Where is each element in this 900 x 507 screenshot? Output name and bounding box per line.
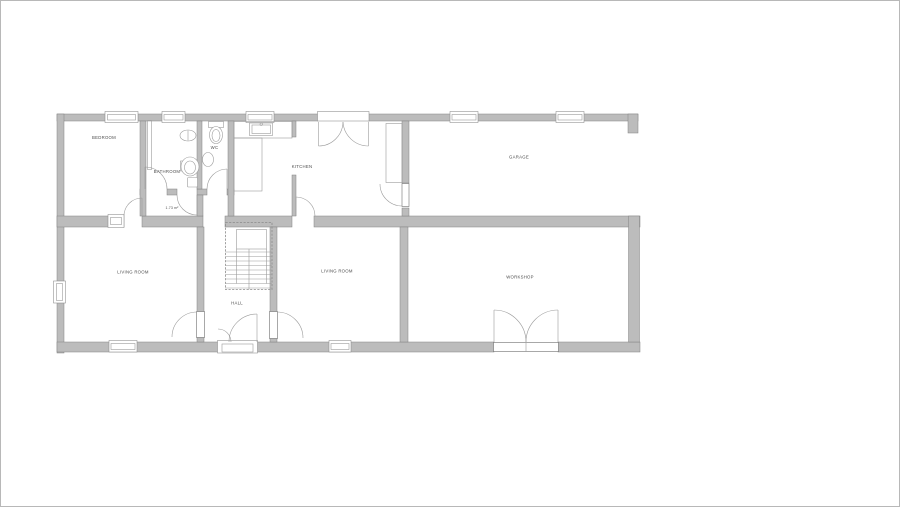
window [246,112,274,123]
wall-segment [270,227,277,312]
walls [57,114,640,353]
wall-segment [629,216,640,342]
wall-segment [257,342,494,352]
wall-segment [197,227,204,312]
door-leaf [402,184,409,207]
wall-segment [57,114,64,353]
shower-tray-icon [188,178,198,188]
door-leaf [270,312,278,339]
room-label-bedroom: BEDROOM [92,135,116,140]
window [556,112,584,123]
wall-segment [368,114,638,121]
fixtures [148,121,403,192]
door-arc [229,314,257,342]
room-label-closet-area: 1.73 m² [166,206,180,210]
room-label-hall: HALL [231,301,243,306]
wall-segment [292,121,296,137]
door-arc [296,197,315,216]
door-arc [494,310,526,342]
washbasin-icon [181,157,199,176]
wall-segment [225,216,292,227]
wall-segment [402,121,409,183]
cabinet-icon [386,124,402,183]
kitchen-counter [234,138,262,191]
door-arc [177,195,197,215]
window [329,341,351,353]
wall-segment [314,216,640,227]
wall-segment [142,216,203,227]
door-arc [380,184,402,206]
window [450,112,478,123]
entrance-threshold [218,341,258,354]
wall-segment [57,114,318,121]
door-arc [526,310,558,342]
staircase-landing [237,230,267,250]
wall-segment [558,342,640,352]
wall-segment [197,195,203,216]
door-arc [124,198,142,216]
room-label-wc: WC [211,145,219,150]
window [109,341,137,353]
room-label-living-room-right: LIVING ROOM [321,269,353,274]
wall-segment [167,189,177,195]
toilet-icon [210,127,223,144]
wall-segment [628,114,638,133]
room-label-living-room-left: LIVING ROOM [117,270,149,275]
room-label-bathroom: BATHROOM [154,169,181,174]
door-arc [277,312,303,338]
window [54,281,66,303]
door-arc [207,169,227,189]
wall-segment [57,342,218,352]
wall-segment [197,189,207,195]
door-threshold [318,112,370,122]
image-border [1,1,900,507]
sink-icon [203,153,214,167]
staircase [226,223,273,290]
doors [124,112,559,354]
windows [54,112,585,353]
window [105,112,138,123]
door-arc [172,312,197,337]
wall-segment [400,227,408,342]
room-label-kitchen: KITCHEN [292,164,313,169]
wall-segment [228,121,234,216]
room-label-garage: GARAGE [509,155,529,160]
window [162,112,185,123]
wall-segment [292,175,296,216]
floor-plan: BEDROOM BATHROOM WC KITCHEN GARAGE LIVIN… [0,0,900,507]
door-leaf [197,312,205,338]
wall-segment [402,208,409,216]
room-label-workshop: WORKSHOP [506,275,534,280]
radiator-icon [148,121,152,170]
door-arc [343,122,369,146]
door-arc [319,122,344,146]
kitchen-sink-bowl [252,125,271,134]
